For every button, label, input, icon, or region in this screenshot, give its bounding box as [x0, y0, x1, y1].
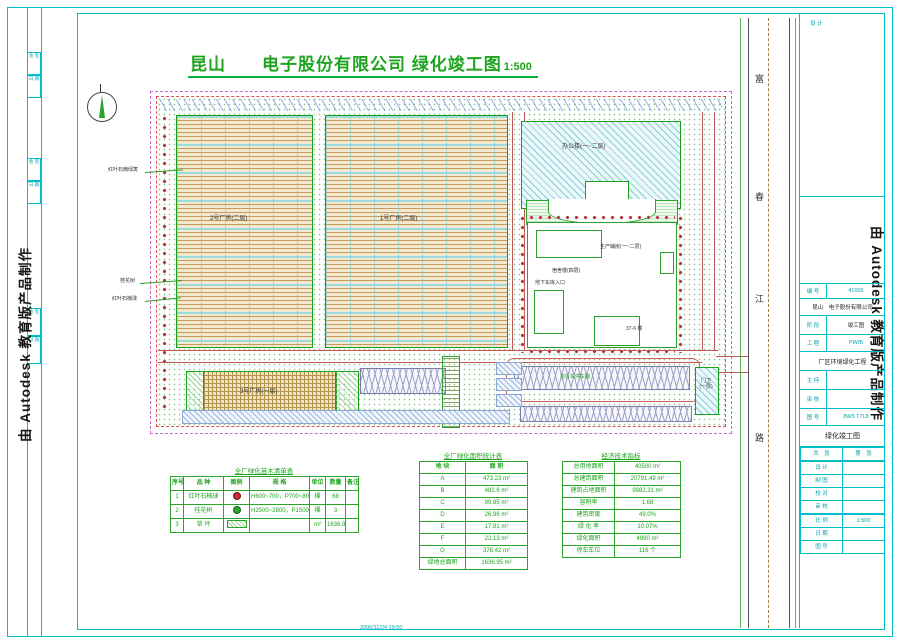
table-cell	[346, 519, 359, 533]
area-table: 地 块面 积A473.23 m²B482.6 m²C99.85 m²D26.96…	[419, 461, 528, 570]
title-block: 设 计 编 号 41005 昆山 电子股份有限公司 阶 段 竣工图 工 程 PW…	[799, 13, 885, 628]
table-cell: 4990 m²	[615, 534, 681, 546]
table-cell: 棵	[310, 491, 326, 505]
road-name-char: 春	[755, 194, 764, 201]
building-outline	[660, 252, 674, 274]
table-cell	[843, 488, 885, 501]
host-row: 主 持	[800, 371, 885, 390]
table-cell: 22.13 m²	[466, 534, 528, 546]
table-cell: G	[420, 546, 466, 558]
table-cell: 9982.31 m²	[615, 486, 681, 498]
parking-stall	[496, 394, 522, 407]
building-outline	[536, 230, 602, 258]
table-cell: 绿 化 率	[563, 522, 615, 534]
table-cell: 99.85 m²	[466, 498, 528, 510]
stage-row: 阶 段 竣工图	[800, 316, 885, 335]
road-line	[512, 112, 513, 350]
tree-row	[527, 347, 675, 354]
compass-tick	[100, 84, 101, 92]
info-table: 比 例1:500日 期图 号	[800, 514, 885, 554]
margin-cell: 日 期	[27, 75, 41, 98]
plant-table-title: 全厂绿化苗木清单表	[170, 465, 358, 475]
road-name-char: 路	[755, 435, 764, 442]
table-cell	[224, 519, 250, 533]
table-cell	[346, 491, 359, 505]
table-cell: 建筑占地面积	[563, 486, 615, 498]
building-label: 宿舍楼(四层)	[552, 268, 580, 274]
project-name: 厂区环境绿化工程	[800, 352, 885, 371]
margin-cell: 会 签	[27, 158, 41, 181]
signature-table: 设 计制 图校 对审 核	[800, 461, 885, 514]
tree-row	[527, 213, 675, 220]
table-cell: 备注	[346, 477, 359, 491]
table-cell: 40500 m²	[615, 462, 681, 474]
table-cell: 审 核	[801, 501, 843, 514]
check-label: 审 核	[800, 390, 827, 408]
table-cell	[250, 519, 310, 533]
building-label: 地下车库入口	[535, 280, 565, 286]
title-block-top-label: 设 计	[810, 19, 823, 27]
margin-cell: 日 期	[27, 181, 41, 204]
table-cell: 376.42 m²	[466, 546, 528, 558]
engineering-row: 工 程 PW/B	[800, 335, 885, 352]
margin-box-group: 会 签 日 期	[27, 158, 41, 204]
table-cell: 桂花树	[184, 505, 224, 519]
table-cell: 总建筑面积	[563, 474, 615, 486]
project-no-label: 编 号	[800, 284, 827, 298]
bike-shed	[520, 406, 692, 422]
table-cell: 图 号	[801, 541, 843, 554]
table-cell: 比 例	[801, 515, 843, 528]
annotation-label: 红叶石楠绿篱	[108, 167, 138, 173]
gate-line	[716, 372, 748, 373]
table-cell: 序号	[171, 477, 184, 491]
table-cell: F	[420, 534, 466, 546]
check-row: 审 核	[800, 390, 885, 409]
stage-label: 阶 段	[800, 316, 827, 334]
plot-stamp: 2006/11/24 19:50	[360, 625, 402, 631]
road-line	[702, 112, 703, 350]
table-cell: 1.68	[615, 498, 681, 510]
table-cell: 容积率	[563, 498, 615, 510]
autodesk-watermark-left: 由 Autodesk 教育版产品制作	[14, 247, 34, 442]
table-cell: 3	[171, 519, 184, 533]
table-cell	[843, 528, 885, 541]
table-cell: 482.6 m²	[466, 486, 528, 498]
table-cell	[843, 462, 885, 475]
road-name-char: 江	[755, 296, 764, 303]
road-name-char: 富	[755, 76, 764, 83]
sheet-count-table: 共 张第 张	[800, 447, 885, 461]
road-edge	[748, 18, 749, 628]
building-label: 生产辅房(一~二层)	[600, 244, 641, 250]
title-block-box2	[800, 197, 885, 284]
project-no-row: 编 号 41005	[800, 284, 885, 299]
stage-value: 竣工图	[827, 321, 885, 329]
area-table-title: 全厂绿化面积统计表	[419, 450, 527, 460]
table-cell: 校 对	[801, 488, 843, 501]
table-cell: H2500~2800，P1500~1800	[250, 505, 310, 519]
table-cell: 面 积	[466, 462, 528, 474]
road-edge	[789, 18, 790, 628]
table-cell: 20791.49 m²	[615, 474, 681, 486]
drawing-title: 昆山 电子股份有限公司 绿化竣工图 1:500	[188, 50, 538, 78]
table-cell: D	[420, 510, 466, 522]
table-cell	[346, 505, 359, 519]
project-no-value: 41005	[827, 288, 885, 294]
table-cell: A	[420, 474, 466, 486]
bike-shed	[360, 368, 446, 394]
table-cell: 17.81 m²	[466, 522, 528, 534]
table-cell: m²	[310, 519, 326, 533]
table-cell: 品 种	[184, 477, 224, 491]
green-legend-symbol	[233, 506, 241, 514]
annotation-label: 桂花树	[120, 278, 135, 284]
gatehouse-label-line2: (一层)	[698, 384, 714, 390]
table-cell: 68	[326, 491, 346, 505]
building-label: 办公楼(一~二层)	[562, 144, 606, 151]
table-cell: 建筑密度	[563, 510, 615, 522]
title-scale: 1:500	[504, 61, 532, 73]
engineering-value: PW/B	[827, 340, 885, 346]
building-factory2	[176, 115, 313, 348]
table-cell: 共 张	[801, 448, 843, 461]
table-cell: 地 块	[420, 462, 466, 474]
building-factory1	[325, 115, 508, 348]
binding-strip-line	[41, 7, 42, 636]
title-block-top-box: 设 计	[800, 13, 885, 197]
table-cell: 3	[326, 505, 346, 519]
building-label: 2号厂房(二层)	[210, 216, 247, 223]
gate-line	[716, 356, 748, 357]
bike-shed-label: 自行车停车棚	[560, 373, 590, 380]
building-label: 1号厂房(二层)	[380, 216, 417, 223]
tree-row	[518, 214, 525, 353]
building-label: 门卫 (一层)	[698, 378, 714, 390]
host-label: 主 持	[800, 371, 827, 389]
table-cell: 10.07%	[615, 522, 681, 534]
figure-no-label: 图 号	[800, 409, 827, 425]
bike-shed	[514, 366, 690, 390]
table-cell: 总用地面积	[563, 462, 615, 474]
table-cell: C	[420, 498, 466, 510]
table-cell: 26.96 m²	[466, 510, 528, 522]
table-cell: 规 格	[250, 477, 310, 491]
table-cell: 473.23 m²	[466, 474, 528, 486]
red-legend-symbol	[233, 492, 241, 500]
road-centerline	[768, 18, 769, 628]
road-curb	[740, 18, 741, 628]
table-cell: 单位	[310, 477, 326, 491]
building-label: 37-6 楼	[626, 326, 642, 332]
entrance-lawn-inner	[548, 199, 656, 224]
table-cell: 第 张	[843, 448, 885, 461]
table-cell: E	[420, 522, 466, 534]
table-cell: 1636.95 m²	[466, 558, 528, 570]
table-cell: 116 个	[615, 546, 681, 558]
table-cell: 绿地总面积	[420, 558, 466, 570]
figure-no-value: 8W5 T7L8	[827, 414, 885, 420]
table-cell: 49.0%	[615, 510, 681, 522]
margin-box-group: 会 签 日 期	[27, 52, 41, 98]
table-cell: 1	[171, 491, 184, 505]
table-cell: 图例	[224, 477, 250, 491]
table-cell: 日 期	[801, 528, 843, 541]
road-line	[714, 112, 715, 350]
margin-cell: 会 签	[27, 52, 41, 75]
table-cell	[843, 501, 885, 514]
indicator-table: 总用地面积40500 m²总建筑面积20791.49 m²建筑占地面积9982.…	[562, 461, 681, 558]
hatch-legend-symbol	[227, 520, 247, 528]
building-label: 3号厂房(一层)	[240, 389, 277, 396]
parking-stall	[496, 362, 522, 375]
annotation-label: 红叶石楠球	[112, 296, 137, 302]
indicator-table-title: 经济技术指标	[562, 450, 680, 460]
north-arrow-icon	[87, 92, 117, 122]
road-curb	[795, 18, 796, 628]
table-cell	[224, 505, 250, 519]
table-cell: 绿化面积	[563, 534, 615, 546]
figure-no-row: 图 号 8W5 T7L8	[800, 409, 885, 426]
engineering-label: 工 程	[800, 335, 827, 351]
parking-stall	[496, 378, 522, 391]
table-cell: 停车车位	[563, 546, 615, 558]
parking-strip	[182, 410, 510, 424]
table-cell: B	[420, 486, 466, 498]
table-cell: 数量	[326, 477, 346, 491]
compass-needle	[99, 95, 105, 118]
table-cell: H600~700，P700~800	[250, 491, 310, 505]
table-cell: 1:500	[843, 515, 885, 528]
table-cell: 棵	[310, 505, 326, 519]
building-gatehouse	[695, 367, 719, 415]
tree-row-left	[160, 114, 168, 414]
table-cell: 1636.95	[326, 519, 346, 533]
table-cell: 草 坪	[184, 519, 224, 533]
building-outline	[534, 290, 564, 334]
client-name: 昆山 电子股份有限公司	[800, 299, 885, 316]
table-cell	[843, 541, 885, 554]
table-cell: 设 计	[801, 462, 843, 475]
title-text: 昆山 电子股份有限公司 绿化竣工图	[190, 50, 502, 75]
tree-row	[676, 214, 683, 353]
table-cell: 2	[171, 505, 184, 519]
drawing-sheet: 会 签 日 期 会 签 日 期 会 签 日 期 由 Autodesk 教育版产品…	[0, 0, 900, 643]
hedge-band-top	[158, 99, 722, 111]
table-cell: 制 图	[801, 475, 843, 488]
table-cell	[843, 475, 885, 488]
table-cell: 红叶石楠球	[184, 491, 224, 505]
table-cell	[224, 491, 250, 505]
drawing-name: 绿化竣工图	[800, 426, 885, 447]
plant-table: 序号品 种图例规 格单位数量备注1红叶石楠球H600~700，P700~800棵…	[170, 476, 359, 533]
